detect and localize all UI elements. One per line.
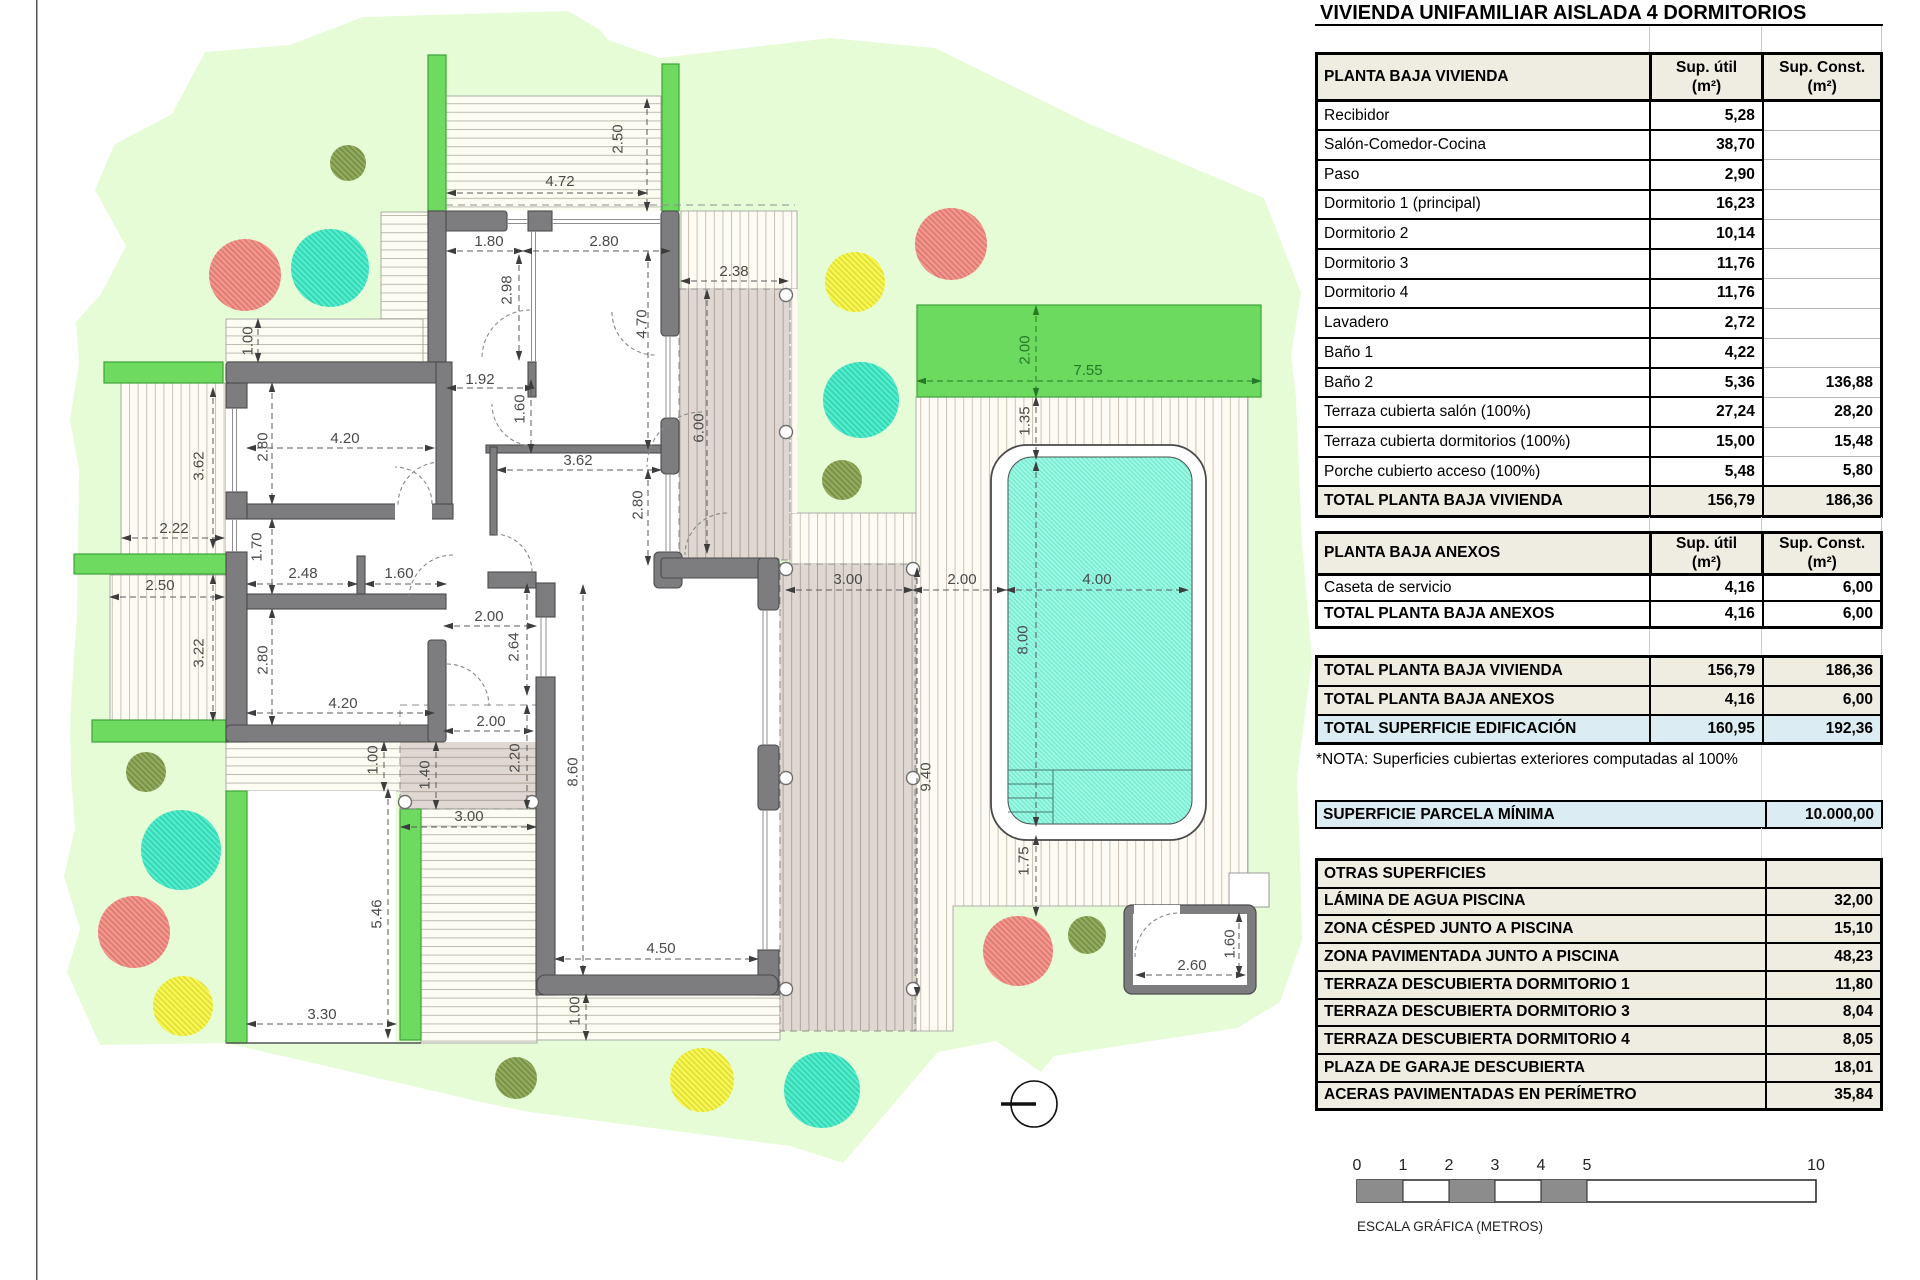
svg-text:1.35: 1.35 (1016, 406, 1033, 435)
svg-text:1.80: 1.80 (474, 233, 503, 250)
svg-text:2.38: 2.38 (719, 263, 748, 280)
svg-text:2.80: 2.80 (254, 645, 271, 674)
svg-text:2.80: 2.80 (254, 432, 271, 461)
svg-text:4: 4 (1537, 1157, 1546, 1174)
svg-text:5.46: 5.46 (368, 899, 385, 928)
svg-text:1.70: 1.70 (248, 532, 265, 561)
svg-text:9.40: 9.40 (917, 762, 934, 791)
svg-text:2.20: 2.20 (506, 743, 523, 772)
svg-text:2.80: 2.80 (629, 490, 646, 519)
svg-text:4.50: 4.50 (646, 940, 675, 957)
svg-text:7.55: 7.55 (1073, 362, 1102, 379)
svg-text:0: 0 (1353, 1157, 1362, 1174)
svg-text:2.64: 2.64 (505, 632, 522, 661)
svg-text:2.50: 2.50 (145, 577, 174, 594)
svg-text:1.00: 1.00 (239, 326, 256, 355)
svg-text:8.60: 8.60 (564, 757, 581, 786)
svg-text:3: 3 (1491, 1157, 1500, 1174)
svg-text:10: 10 (1807, 1157, 1825, 1174)
svg-text:4.20: 4.20 (328, 695, 357, 712)
svg-text:3.62: 3.62 (190, 451, 207, 480)
svg-text:2.00: 2.00 (474, 608, 503, 625)
svg-text:2.80: 2.80 (589, 233, 618, 250)
svg-text:2.50: 2.50 (609, 124, 626, 153)
svg-text:2.98: 2.98 (498, 275, 515, 304)
svg-text:5: 5 (1583, 1157, 1592, 1174)
svg-text:4.00: 4.00 (1082, 571, 1111, 588)
svg-text:3.00: 3.00 (454, 808, 483, 825)
svg-text:2.22: 2.22 (159, 520, 188, 537)
svg-text:3.22: 3.22 (190, 638, 207, 667)
svg-text:2.48: 2.48 (288, 565, 317, 582)
svg-text:4.20: 4.20 (330, 430, 359, 447)
svg-text:4.72: 4.72 (545, 173, 574, 190)
svg-text:2: 2 (1445, 1157, 1454, 1174)
svg-text:1.60: 1.60 (1221, 929, 1238, 958)
svg-text:2.00: 2.00 (476, 713, 505, 730)
svg-text:1: 1 (1399, 1157, 1408, 1174)
svg-text:2.60: 2.60 (1177, 957, 1206, 974)
svg-text:ESCALA GRÁFICA (METROS): ESCALA GRÁFICA (METROS) (1357, 1219, 1543, 1234)
svg-text:1.00: 1.00 (566, 996, 583, 1025)
svg-text:1.60: 1.60 (511, 394, 528, 423)
svg-text:3.62: 3.62 (563, 452, 592, 469)
svg-text:4.70: 4.70 (633, 309, 650, 338)
svg-text:6.00: 6.00 (690, 413, 707, 442)
svg-text:2.00: 2.00 (1016, 335, 1033, 364)
svg-text:1.40: 1.40 (416, 760, 433, 789)
svg-text:1.92: 1.92 (465, 371, 494, 388)
svg-text:8.00: 8.00 (1014, 625, 1031, 654)
svg-text:3.30: 3.30 (307, 1006, 336, 1023)
svg-text:1.60: 1.60 (384, 565, 413, 582)
svg-text:1.00: 1.00 (364, 745, 381, 774)
svg-text:1.75: 1.75 (1015, 846, 1032, 875)
svg-text:3.00: 3.00 (833, 571, 862, 588)
svg-text:2.00: 2.00 (947, 571, 976, 588)
